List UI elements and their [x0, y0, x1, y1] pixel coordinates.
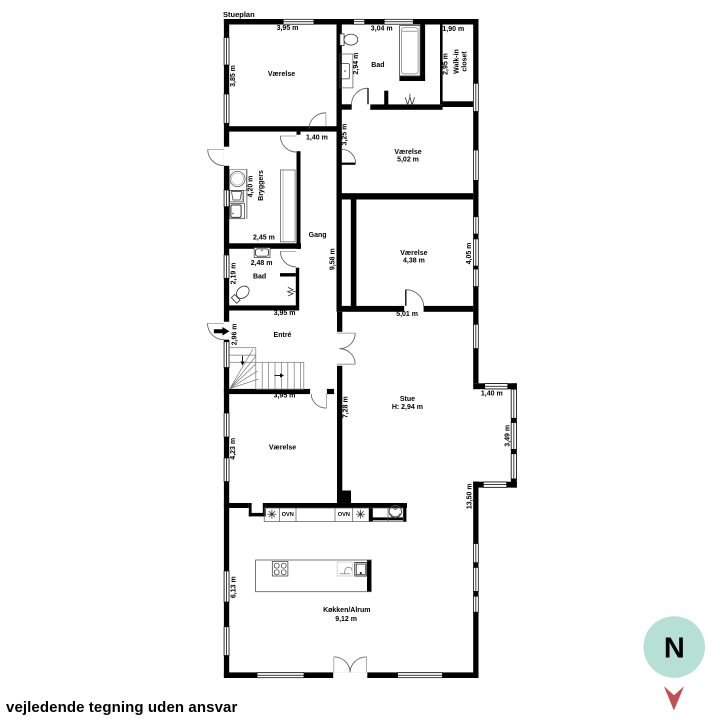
svg-text:9,12 m: 9,12 m	[335, 616, 357, 623]
svg-text:2,45 m: 2,45 m	[253, 235, 275, 242]
svg-text:2,95 m: 2,95 m	[442, 53, 449, 75]
svg-text:2,94 m: 2,94 m	[353, 53, 360, 75]
svg-text:9,58 m: 9,58 m	[329, 248, 336, 270]
svg-text:Walk-in: Walk-in	[454, 49, 461, 74]
svg-text:3,95 m: 3,95 m	[274, 310, 296, 317]
svg-text:Bad: Bad	[371, 62, 384, 69]
svg-text:Køkken/Alrum: Køkken/Alrum	[323, 607, 370, 614]
svg-text:Værelse: Værelse	[394, 149, 421, 156]
svg-text:Værelse: Værelse	[269, 444, 296, 451]
svg-text:Gang: Gang	[309, 232, 327, 239]
svg-text:Bryggers: Bryggers	[258, 170, 265, 201]
svg-text:OVN: OVN	[282, 512, 294, 518]
svg-text:3,04 m: 3,04 m	[371, 26, 393, 33]
svg-text:Stue: Stue	[400, 396, 415, 403]
svg-text:Værelse: Værelse	[268, 71, 295, 78]
svg-text:1,40 m: 1,40 m	[481, 390, 503, 397]
svg-text:7,28 m: 7,28 m	[343, 396, 350, 418]
svg-text:H: 2,94 m: H: 2,94 m	[392, 404, 423, 411]
svg-text:2,48 m: 2,48 m	[251, 260, 273, 267]
svg-text:3,95 m: 3,95 m	[274, 392, 296, 399]
svg-text:2,19 m: 2,19 m	[230, 263, 237, 285]
svg-text:4,38 m: 4,38 m	[403, 257, 425, 264]
svg-text:5,02 m: 5,02 m	[397, 156, 419, 163]
svg-text:13,50 m: 13,50 m	[467, 483, 474, 509]
svg-text:4,05 m: 4,05 m	[466, 243, 473, 265]
svg-text:N: N	[664, 633, 685, 665]
svg-text:1,90 m: 1,90 m	[442, 26, 464, 33]
svg-text:3,95 m: 3,95 m	[277, 25, 299, 32]
svg-text:3,49 m: 3,49 m	[505, 425, 512, 447]
svg-text:3,85 m: 3,85 m	[230, 65, 237, 87]
svg-text:closet: closet	[462, 51, 469, 72]
svg-text:Værelse: Værelse	[400, 250, 427, 257]
svg-text:4,23 m: 4,23 m	[230, 438, 237, 460]
svg-text:Bad: Bad	[253, 274, 266, 281]
svg-text:4,20 m: 4,20 m	[248, 176, 255, 198]
svg-text:Entré: Entré	[274, 332, 292, 339]
svg-text:Stueplan: Stueplan	[223, 10, 255, 19]
svg-text:2,96 m: 2,96 m	[231, 324, 238, 346]
svg-text:3,25 m: 3,25 m	[341, 124, 348, 146]
svg-text:6,13 m: 6,13 m	[230, 576, 237, 598]
svg-text:1,40 m: 1,40 m	[306, 134, 328, 141]
svg-text:vejledende tegning uden ansvar: vejledende tegning uden ansvar	[6, 699, 237, 716]
svg-text:OVN: OVN	[338, 512, 350, 518]
svg-text:5,01 m: 5,01 m	[396, 311, 418, 318]
